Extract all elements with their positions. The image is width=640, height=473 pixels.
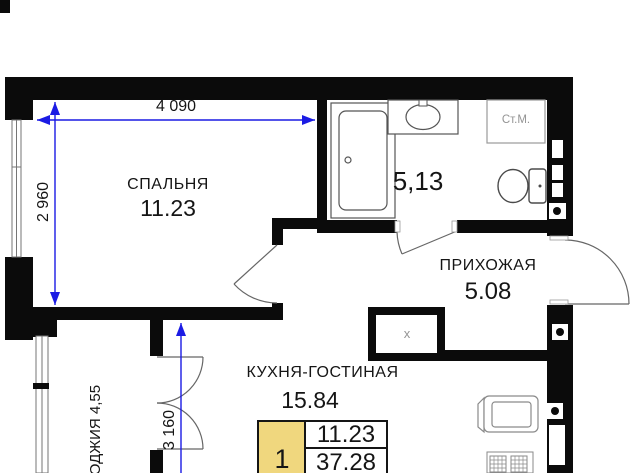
duct-niche-4: [549, 425, 565, 465]
hallway-area: 5.08: [418, 278, 558, 306]
page-corner-mark: [0, 0, 10, 13]
bedroom-area: 11.23: [103, 195, 233, 222]
hallway-kitchen-wall: [440, 350, 548, 361]
floor-plan: СПАЛЬНЯ 11.23 5,13 Ст.М. x ПРИХОЖАЯ 5.08…: [0, 0, 640, 473]
bedroom-label: СПАЛЬНЯ: [103, 176, 233, 194]
dim-kitchen-height-label: 3 160: [161, 388, 181, 472]
info-table-room-count: 1: [257, 420, 307, 473]
bathroom-bottom-wall-right: [457, 220, 547, 233]
dim-line-bedroom-width: [37, 115, 315, 125]
duct-niche-3: [552, 183, 563, 197]
hallway-label: ПРИХОЖАЯ: [418, 257, 558, 275]
bedroom-right-wall: [317, 100, 327, 220]
kitchen-living-label: КУХНЯ-ГОСТИНАЯ: [225, 364, 420, 382]
riser-pipe-1: [553, 207, 561, 215]
info-table-total-area: 37.28: [304, 447, 388, 473]
loggia-glazing: [33, 336, 49, 473]
loggia-glazing-post: [33, 383, 49, 389]
riser-pipe-3: [551, 407, 559, 415]
vent-shaft-label: x: [388, 326, 426, 341]
bathroom-sink: [388, 100, 458, 134]
toilet: [498, 169, 546, 203]
washing-machine-label: Ст.М.: [487, 114, 545, 126]
duct-niche-2: [552, 165, 563, 180]
bathroom-area: 5,13: [378, 166, 458, 197]
bathroom-bottom-wall-left: [317, 220, 397, 233]
bedroom-door: [234, 245, 277, 303]
stove: [487, 452, 533, 473]
entrance-door: [550, 236, 629, 304]
info-table-living-area: 11.23: [304, 420, 388, 449]
dim-bedroom-width-label: 4 090: [116, 98, 236, 116]
loggia-label: ЛОДЖИЯ 4,55: [87, 350, 107, 473]
bedroom-window: [12, 120, 21, 257]
loggia-divider-upper: [150, 318, 163, 356]
kitchen-living-area: 15.84: [255, 387, 365, 414]
bathroom-door: [395, 221, 457, 254]
top-left-corner-block: [5, 77, 33, 120]
loggia-entry-pier: [33, 320, 57, 337]
bedroom-door-jamb-top: [272, 228, 283, 245]
bathtub: [331, 103, 395, 218]
bedroom-bottom-wall: [5, 307, 283, 320]
duct-niche-1: [552, 140, 563, 158]
top-wall: [5, 77, 573, 100]
kitchen-sink: [478, 396, 538, 432]
left-wall-lower-block: [5, 257, 33, 340]
dim-bedroom-height-label: 2 960: [35, 160, 55, 244]
riser-pipe-2: [556, 328, 564, 336]
